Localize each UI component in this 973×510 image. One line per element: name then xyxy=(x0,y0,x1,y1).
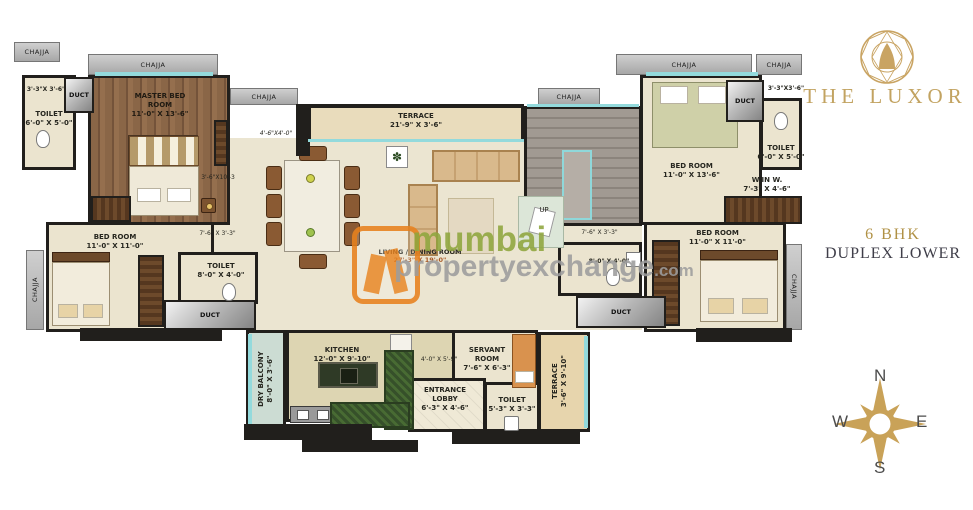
terrace-top-label: TERRACE21'-9" X 3'-6" xyxy=(308,112,524,130)
window xyxy=(646,72,758,76)
duct-label: DUCT xyxy=(64,77,94,113)
toilet-top-right-label: TOILET6'-0" X 5'-0" xyxy=(756,144,806,162)
furniture-sofa xyxy=(432,150,520,182)
furniture-bed-right xyxy=(700,250,778,322)
wall xyxy=(244,424,372,440)
window xyxy=(95,72,213,76)
chajja-label: CHAJJA xyxy=(538,88,600,105)
wall xyxy=(452,430,580,444)
toilet-left-label: TOILET8'-0" X 4'-0" xyxy=(190,262,252,280)
brand-name: THE LUXOR xyxy=(800,84,970,109)
niche-top-right-dims: 3'-3"X3'-6" xyxy=(766,85,806,93)
dry-balcony-label: DRY BALCONY8'-0" X 3'-6" xyxy=(257,333,275,425)
niche-top-left-dims: 3'-3"X 3'-6" xyxy=(24,86,68,94)
duct-label: DUCT xyxy=(726,80,764,122)
furniture-bed-left xyxy=(52,252,110,326)
floor-plan-page: CHAJJA CHAJJA 3'-3"X 3'-6" TOILET6'-0" X… xyxy=(0,0,973,510)
servant-room-label: SERVANT ROOM7'-6" X 6'-3" xyxy=(456,346,518,373)
furniture-wardrobe xyxy=(214,120,228,166)
wc-icon xyxy=(774,112,788,130)
bedroom-top-right-label: BED ROOM11'-0" X 13'-6" xyxy=(644,162,739,180)
unit-type: 6 BHK xyxy=(818,226,968,244)
compass-east: E xyxy=(916,412,927,432)
bedroom-right-label: BED ROOM11'-0" X 11'-0" xyxy=(670,229,765,247)
wc-icon xyxy=(222,283,236,301)
toilet-bottom-label: TOILET5'-3" X 3'-3" xyxy=(486,396,538,414)
furniture-master-bed xyxy=(128,135,198,215)
window xyxy=(308,139,524,142)
wall xyxy=(80,328,222,341)
stair-flight xyxy=(562,150,592,220)
kitchen-island xyxy=(318,362,378,388)
passage-dims: 4'-6"X4'-0" xyxy=(250,130,302,138)
walk-in-wardrobe-label: W.IN W.7'-3" X 4'-6" xyxy=(736,176,798,194)
unit-variant: DUPLEX LOWER xyxy=(810,245,973,263)
furniture-wardrobe xyxy=(138,255,164,327)
passage-dims: 7'-6" X 3'-3" xyxy=(190,230,245,238)
chajja-label: CHAJJA xyxy=(26,250,44,330)
terrace-bottom-label: TERRACE3'-6" X 9'-10" xyxy=(551,333,569,429)
master-bedroom-label: MASTER BED ROOM11'-0" X 13'-6" xyxy=(128,92,192,119)
furniture-nightstand xyxy=(201,198,216,213)
compass-west: W xyxy=(832,412,848,432)
wall xyxy=(302,440,418,452)
plant-icon: ✽ xyxy=(386,146,408,168)
passage-dims: 3'-6"X10'-3 xyxy=(194,174,242,182)
bedroom-left-label: BED ROOM11'-0" X 11'-0" xyxy=(70,233,160,251)
compass-south: S xyxy=(874,458,885,478)
window xyxy=(527,104,639,107)
chajja-label: CHAJJA xyxy=(230,88,298,105)
duct-label: DUCT xyxy=(576,296,666,328)
wc-icon xyxy=(36,130,50,148)
toilet-top-left-label: TOILET6'-0" X 5'-0" xyxy=(16,110,82,128)
wc-icon xyxy=(504,416,519,431)
entrance-lobby-label: ENTRANCE LOBBY6'-3" X 4'-6" xyxy=(414,386,476,413)
chajja-label: CHAJJA xyxy=(786,244,802,330)
passage-dims: 7'-6" X 3'-3" xyxy=(572,229,627,237)
furniture-wardrobe xyxy=(724,196,802,224)
up-label: UP xyxy=(530,206,558,215)
wall xyxy=(696,328,792,342)
chajja-label: CHAJJA xyxy=(14,42,60,62)
watermark-word2: propertyexchange.com xyxy=(394,252,694,282)
furniture-dresser xyxy=(91,196,131,222)
window xyxy=(248,334,252,426)
compass-north: N xyxy=(874,366,886,386)
luxor-logo-icon xyxy=(858,28,916,86)
kitchen-label: KITCHEN12'-0" X 9'-10" xyxy=(306,346,378,364)
window xyxy=(584,336,588,428)
duct-label: DUCT xyxy=(164,300,256,330)
chajja-label: CHAJJA xyxy=(756,54,802,75)
